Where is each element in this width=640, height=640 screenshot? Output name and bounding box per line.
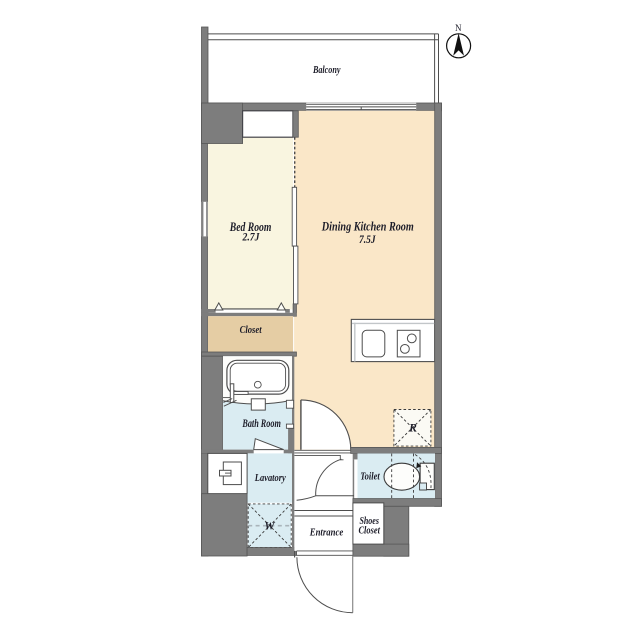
svg-text:Entrance: Entrance [309, 527, 344, 538]
svg-text:Bath Room: Bath Room [242, 418, 281, 430]
svg-text:Balcony: Balcony [312, 64, 340, 76]
svg-text:Toilet: Toilet [360, 471, 380, 482]
svg-text:N: N [455, 23, 462, 33]
svg-text:7.5J: 7.5J [359, 232, 376, 246]
svg-text:2.7J: 2.7J [242, 229, 261, 243]
svg-text:Lavatory: Lavatory [254, 473, 286, 484]
svg-text:Closet: Closet [240, 325, 263, 336]
svg-text:Closet: Closet [358, 525, 380, 536]
svg-text:R: R [408, 422, 417, 434]
svg-text:W: W [264, 521, 275, 533]
